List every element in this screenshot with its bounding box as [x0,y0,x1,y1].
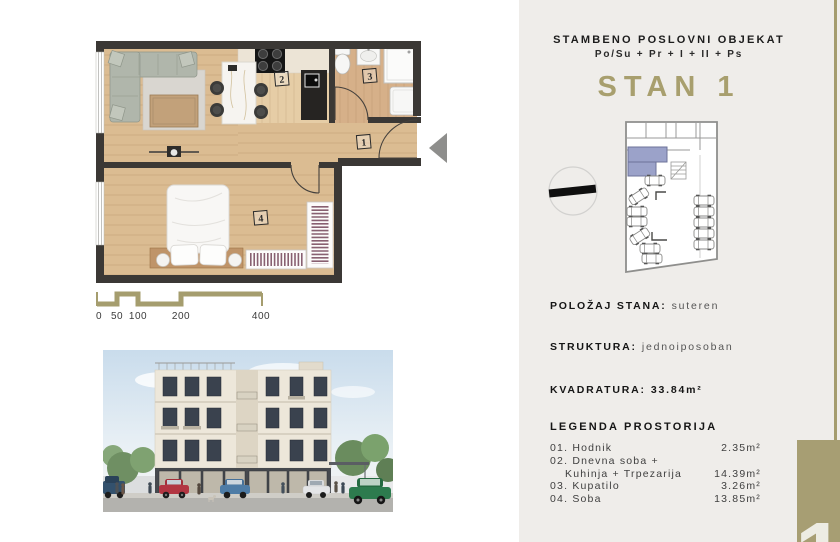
legend-room-name: 03. Kupatilo [550,480,620,493]
legend-row: 02. Dnevna soba + [550,455,761,468]
street [103,498,393,512]
building-title: STAMBENO POSLOVNI OBJEKAT [519,34,819,46]
clothes-rack-vertical [307,202,333,268]
clothes-rack-horizontal [246,250,306,269]
room-label-bathroom: 3 [367,71,373,82]
kitchen-tall-unit [301,70,327,120]
detail-area-value: 33.84m² [651,384,703,396]
bathroom-sink [357,47,380,65]
scale-tick-0: 0 [96,311,102,322]
scale-tick-50: 50 [111,311,123,322]
detail-position-value: suteren [672,300,720,312]
kitchen-island [222,62,256,124]
detail-position-label: POLOŽAJ STANA: [550,300,667,312]
page-number-badge: 1 [797,440,840,542]
scale-tick-100: 100 [129,311,147,322]
brochure-page: 2 3 1 4 0 50 100 200 400 [0,0,840,542]
detail-structure-value: jednoiposoban [642,341,734,353]
room-label-hallway: 1 [361,137,367,148]
detail-area: KVADRATURA:33.84m² [550,380,703,398]
shower [384,46,417,83]
legend-room-name: 02. Dnevna soba + [550,455,659,468]
scale-bar: 0 50 100 200 400 [95,288,275,322]
panel-header: STAMBENO POSLOVNI OBJEKAT Po/Su + Pr + I… [519,34,819,104]
toilet [335,48,350,74]
coffee-table [150,95,198,127]
stairs [671,162,686,179]
legend-room-area: 2.35m² [721,442,761,455]
legend-row: 01. Hodnik 2.35m² [550,442,761,455]
entrance-arrow-icon [429,133,447,163]
building-floors: Po/Su + Pr + I + II + Ps [519,49,819,60]
site-plan [540,110,740,285]
washing-machine [390,87,417,115]
legend-row: 04. Soba 13.85m² [550,493,761,506]
building-outline [626,122,717,272]
legend-rows: 01. Hodnik 2.35m² 02. Dnevna soba + Kuhi… [550,442,761,506]
scale-tick-400: 400 [252,311,270,322]
legend-room-name: 04. Soba [550,493,602,506]
building-rendering [103,350,393,512]
info-panel: STAMBENO POSLOVNI OBJEKAT Po/Su + Pr + I… [519,0,840,542]
detail-structure-label: STRUKTURA: [550,341,637,353]
detail-structure: STRUKTURA:jednoiposoban [550,337,734,355]
room-label-bedroom: 4 [258,213,264,224]
scale-tick-200: 200 [172,311,190,322]
floor-plan: 2 3 1 4 [95,30,455,292]
room-label-kitchen: 2 [279,74,285,85]
legend-title: LEGENDA PROSTORIJA [550,421,717,433]
legend-room-area: 14.39m² [714,468,761,481]
legend-room-area: 13.85m² [714,493,761,506]
page-number: 1 [797,510,840,542]
legend-row: 03. Kupatilo 3.26m² [550,480,761,493]
legend-row: Kuhinja + Trpezarija 14.39m² [550,468,761,481]
legend-room-area: 3.26m² [721,480,761,493]
unit-title: STAN 1 [519,71,819,104]
detail-area-label: KVADRATURA: [550,384,646,396]
detail-position: POLOŽAJ STANA:suteren [550,296,719,314]
north-indicator [549,167,597,215]
legend-room-name: 01. Hodnik [550,442,612,455]
legend-room-name: Kuhinja + Trpezarija [550,468,682,481]
